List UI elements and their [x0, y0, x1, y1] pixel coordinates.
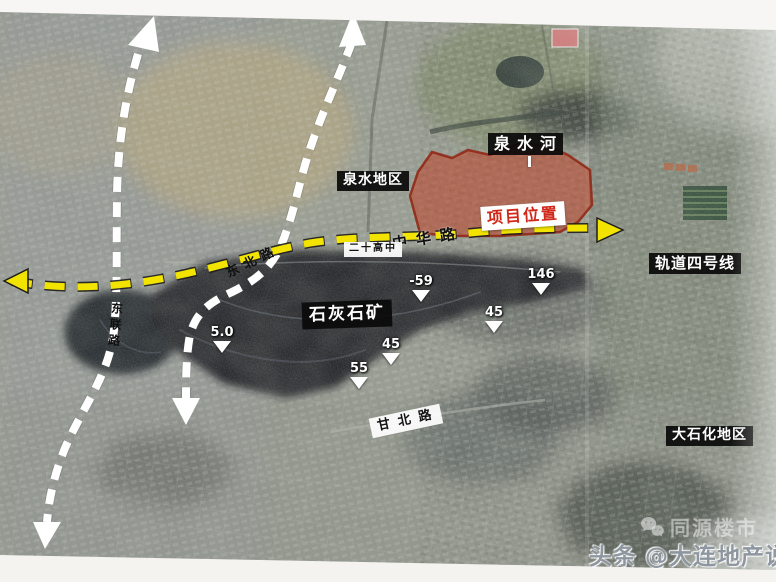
- satellite-imagery: [0, 0, 776, 582]
- photo-crease: [585, 0, 589, 582]
- watermark-platform: 头条: [589, 544, 637, 570]
- elevation-marker: 146: [519, 268, 563, 295]
- wechat-icon: [640, 515, 666, 539]
- elevation-triangle-icon: [532, 283, 550, 295]
- watermark-account: @大连地产说: [645, 544, 776, 570]
- label-limestone-quarry: 石灰石矿: [302, 299, 393, 329]
- quanshui-river-pointer: [528, 156, 531, 167]
- label-rail-line-4: 轨道四号线: [649, 253, 741, 274]
- label-no20-high-school: 二十高中: [344, 242, 402, 257]
- satellite-map: 泉水河 泉水地区 项目位置 中华路 二十高中 东北路 石灰石矿 东联路 轨道四号…: [0, 0, 776, 582]
- label-dashihua-area: 大石化地区: [666, 426, 753, 446]
- elevation-marker: 5.0: [200, 326, 244, 353]
- label-quanshui-river: 泉水河: [488, 133, 563, 155]
- elevation-value: 146: [519, 268, 563, 282]
- elevation-marker: -59: [399, 275, 443, 302]
- toutiao-watermark: 头条@大连地产说: [589, 537, 776, 571]
- elevation-triangle-icon: [412, 290, 430, 302]
- elevation-value: -59: [399, 275, 443, 289]
- elevation-marker: 45: [472, 306, 516, 333]
- map-photo: 泉水河 泉水地区 项目位置 中华路 二十高中 东北路 石灰石矿 东联路 轨道四号…: [0, 0, 776, 582]
- elevation-triangle-icon: [382, 353, 400, 365]
- elevation-value: 45: [472, 306, 516, 320]
- elevation-triangle-icon: [485, 321, 503, 333]
- elevation-triangle-icon: [350, 377, 368, 389]
- elevation-triangle-icon: [213, 341, 231, 353]
- elevation-value: 45: [369, 338, 413, 352]
- elevation-value: 5.0: [200, 326, 244, 340]
- label-quanshui-area: 泉水地区: [337, 171, 409, 191]
- elevation-value: 55: [337, 362, 381, 376]
- elevation-marker: 55: [337, 362, 381, 389]
